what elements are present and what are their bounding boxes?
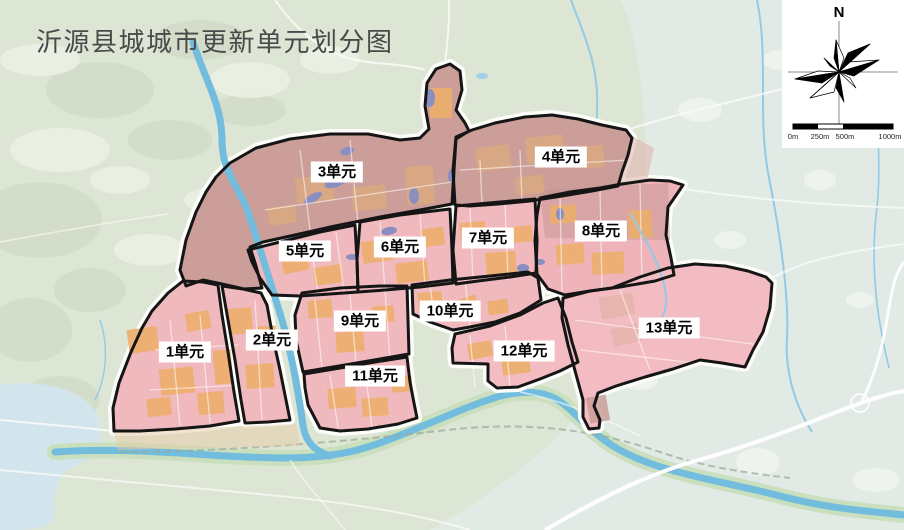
scale-label-1000: 1000m [879, 132, 902, 141]
unit-label-u11: 11单元 [345, 366, 405, 387]
unit-label-u9: 9单元 [334, 311, 386, 332]
unit-label-u12: 12单元 [494, 341, 555, 362]
unit-label-u5: 5单元 [279, 241, 331, 262]
unit-label-u7: 7单元 [462, 228, 514, 249]
unit-label-u6: 6单元 [374, 237, 426, 258]
unit-label-u10: 10单元 [420, 301, 481, 322]
unit-label-u13: 13单元 [639, 318, 700, 339]
wind-rose-icon [795, 40, 879, 102]
map-title: 沂源县城城市更新单元划分图 [36, 22, 394, 59]
scale-label-0: 0m [788, 132, 798, 141]
unit-label-u3: 3单元 [311, 162, 363, 183]
north-label: N [834, 4, 845, 21]
compass-panel: N 0m [782, 0, 904, 148]
scale-bar: 0m 250m 500m 1000m [788, 124, 902, 141]
unit-label-u1: 1单元 [159, 342, 211, 363]
scale-label-500: 500m [836, 132, 855, 141]
map-canvas [0, 0, 904, 530]
unit-label-u2: 2单元 [246, 330, 298, 351]
unit-label-u8: 8单元 [575, 221, 627, 242]
scale-label-250: 250m [811, 132, 830, 141]
planning-map-screenshot: 沂源县城城市更新单元划分图 1单元2单元3单元4单元5单元6单元7单元8单元9单… [0, 0, 904, 530]
unit-label-u4: 4单元 [535, 147, 587, 168]
